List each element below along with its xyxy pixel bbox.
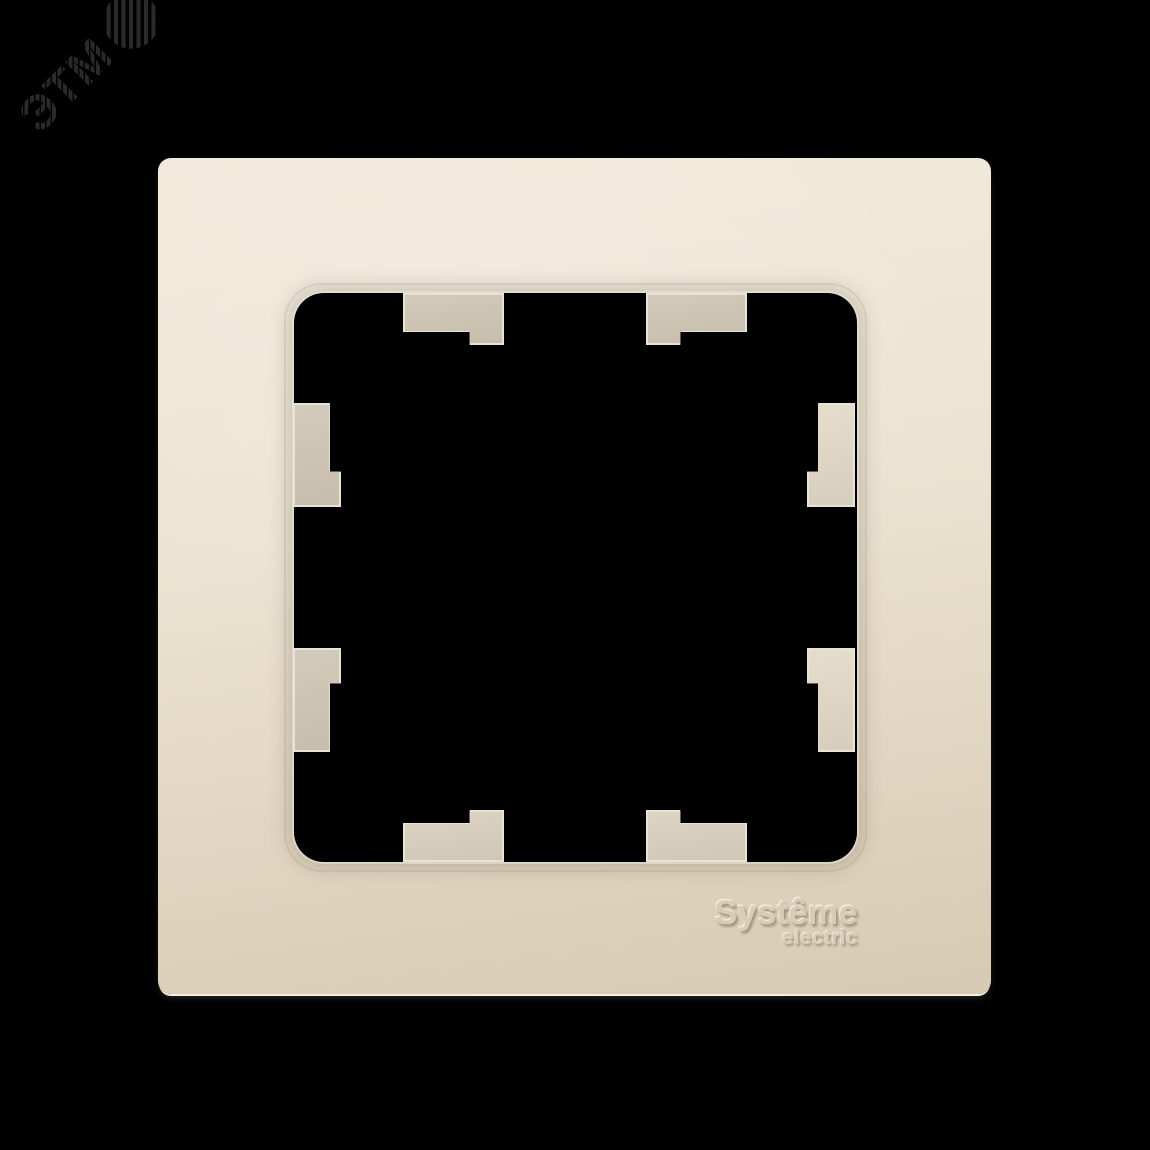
brand-name: Systême	[628, 896, 858, 930]
watermark: ЭТМ	[5, 0, 173, 147]
watermark-text: ЭТМ	[11, 30, 122, 141]
product-photo: ЭТМ Systême electric	[0, 0, 1150, 1150]
frame-opening	[294, 293, 857, 862]
brand-logo: Systême electric	[628, 896, 858, 949]
